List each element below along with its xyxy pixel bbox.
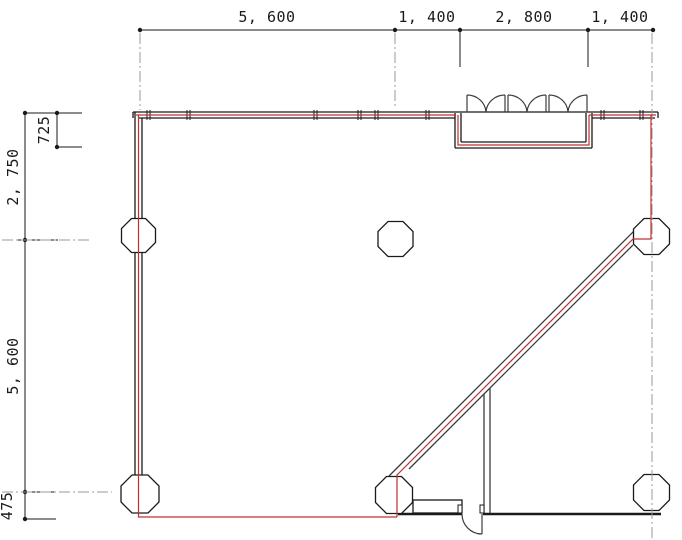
dim-left-725: 725 — [35, 116, 53, 145]
door-swing-arc — [568, 95, 587, 112]
bottom-wall — [398, 500, 661, 514]
diagonal-wall — [389, 219, 646, 513]
door-swing-arc — [527, 95, 546, 112]
column-bottom-middle — [376, 477, 413, 514]
entrance-doors — [467, 95, 587, 112]
dim-top-5600: 5, 600 — [238, 8, 295, 26]
dim-top-1400a: 1, 400 — [398, 8, 455, 26]
door-swing-arc — [549, 95, 568, 112]
dimension-dots — [23, 28, 655, 521]
dim-left-5600: 5, 600 — [4, 337, 22, 394]
red-left-and-bottom-wall — [139, 115, 398, 517]
dim-left-475: 475 — [0, 492, 16, 521]
entrance-recess-walls — [455, 113, 592, 148]
red-right-and-diagonal-wall — [397, 115, 651, 517]
door-swing-arc — [467, 95, 486, 112]
exit-door-swing-arc — [462, 514, 482, 534]
floor-plan-canvas: 5, 600 1, 400 2, 800 1, 400 2, 750 725 5… — [0, 0, 682, 540]
dim-top-2800: 2, 800 — [495, 8, 552, 26]
door-jamb-left — [458, 505, 462, 513]
centerlines — [2, 33, 652, 538]
dimension-labels: 5, 600 1, 400 2, 800 1, 400 2, 750 725 5… — [0, 8, 649, 520]
dim-top-1400b: 1, 400 — [591, 8, 648, 26]
red-wall-lines — [136, 115, 656, 517]
door-jamb-right — [480, 505, 484, 513]
red-recess — [458, 115, 589, 145]
floor-plan-page: 5, 600 1, 400 2, 800 1, 400 2, 750 725 5… — [0, 0, 682, 540]
diagonal-wall-outer — [389, 219, 646, 476]
door-swing-arc — [486, 95, 505, 112]
wall-lines — [133, 110, 658, 513]
diagonal-wall-inner — [409, 245, 633, 469]
entry-step — [413, 500, 462, 513]
column-top-middle — [378, 222, 413, 257]
door-swing-arc — [508, 95, 527, 112]
column-bottom-left — [121, 475, 159, 513]
dimension-lines — [18, 30, 653, 519]
dim-left-2750: 2, 750 — [4, 148, 22, 205]
exit-door — [462, 514, 482, 534]
